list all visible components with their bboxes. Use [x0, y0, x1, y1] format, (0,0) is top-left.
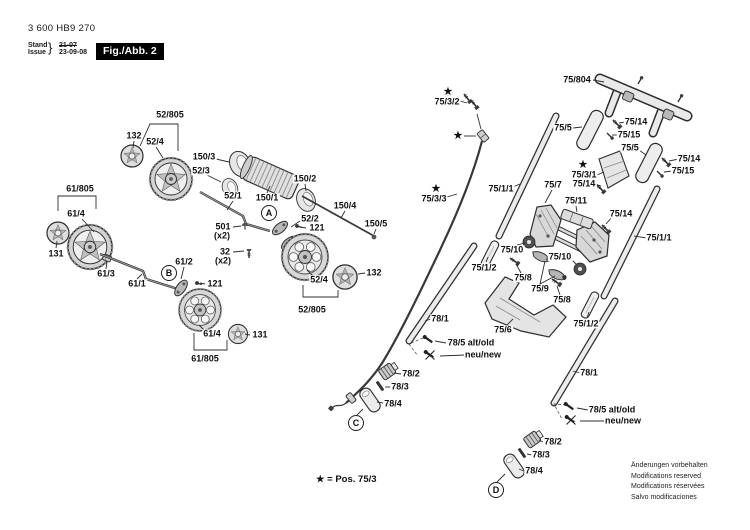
handlebar-group — [575, 75, 687, 234]
stand-issue-label: Stand Issue — [28, 42, 47, 56]
issue-date-new: 23-09-08 — [59, 49, 87, 56]
modifications-notice-line: Änderungen vorbehalten — [631, 461, 708, 472]
issue-date-old: 21-07 — [59, 42, 87, 49]
rear-wheel-group — [47, 222, 248, 344]
figure-number-badge: Fig./Abb. 2 — [96, 43, 164, 60]
modifications-notice-line: Modifications réservées — [631, 482, 708, 493]
exploded-view-drawing — [0, 0, 750, 530]
issue-label: Issue — [28, 49, 47, 56]
modifications-notice-line: Salvo modificaciones — [631, 493, 708, 504]
cable-group — [328, 93, 489, 412]
document-part-number: 3 600 HB9 270 — [28, 23, 95, 34]
modifications-notice-line: Modifications reserved — [631, 472, 708, 483]
modifications-notice: Änderungen vorbehaltenModifications rese… — [631, 461, 708, 503]
issue-dates: 21-07 23-09-08 — [59, 42, 87, 56]
cable-end-groups — [358, 334, 576, 480]
stand-label: Stand — [28, 42, 47, 49]
parts-diagram-page: 52/80513252/4150/352/361/80561/452/1150/… — [0, 0, 750, 530]
legend-note: ★ = Pos. 75/3 — [316, 474, 377, 485]
issue-brace: } — [48, 40, 52, 55]
front-wheel-group — [121, 145, 376, 289]
